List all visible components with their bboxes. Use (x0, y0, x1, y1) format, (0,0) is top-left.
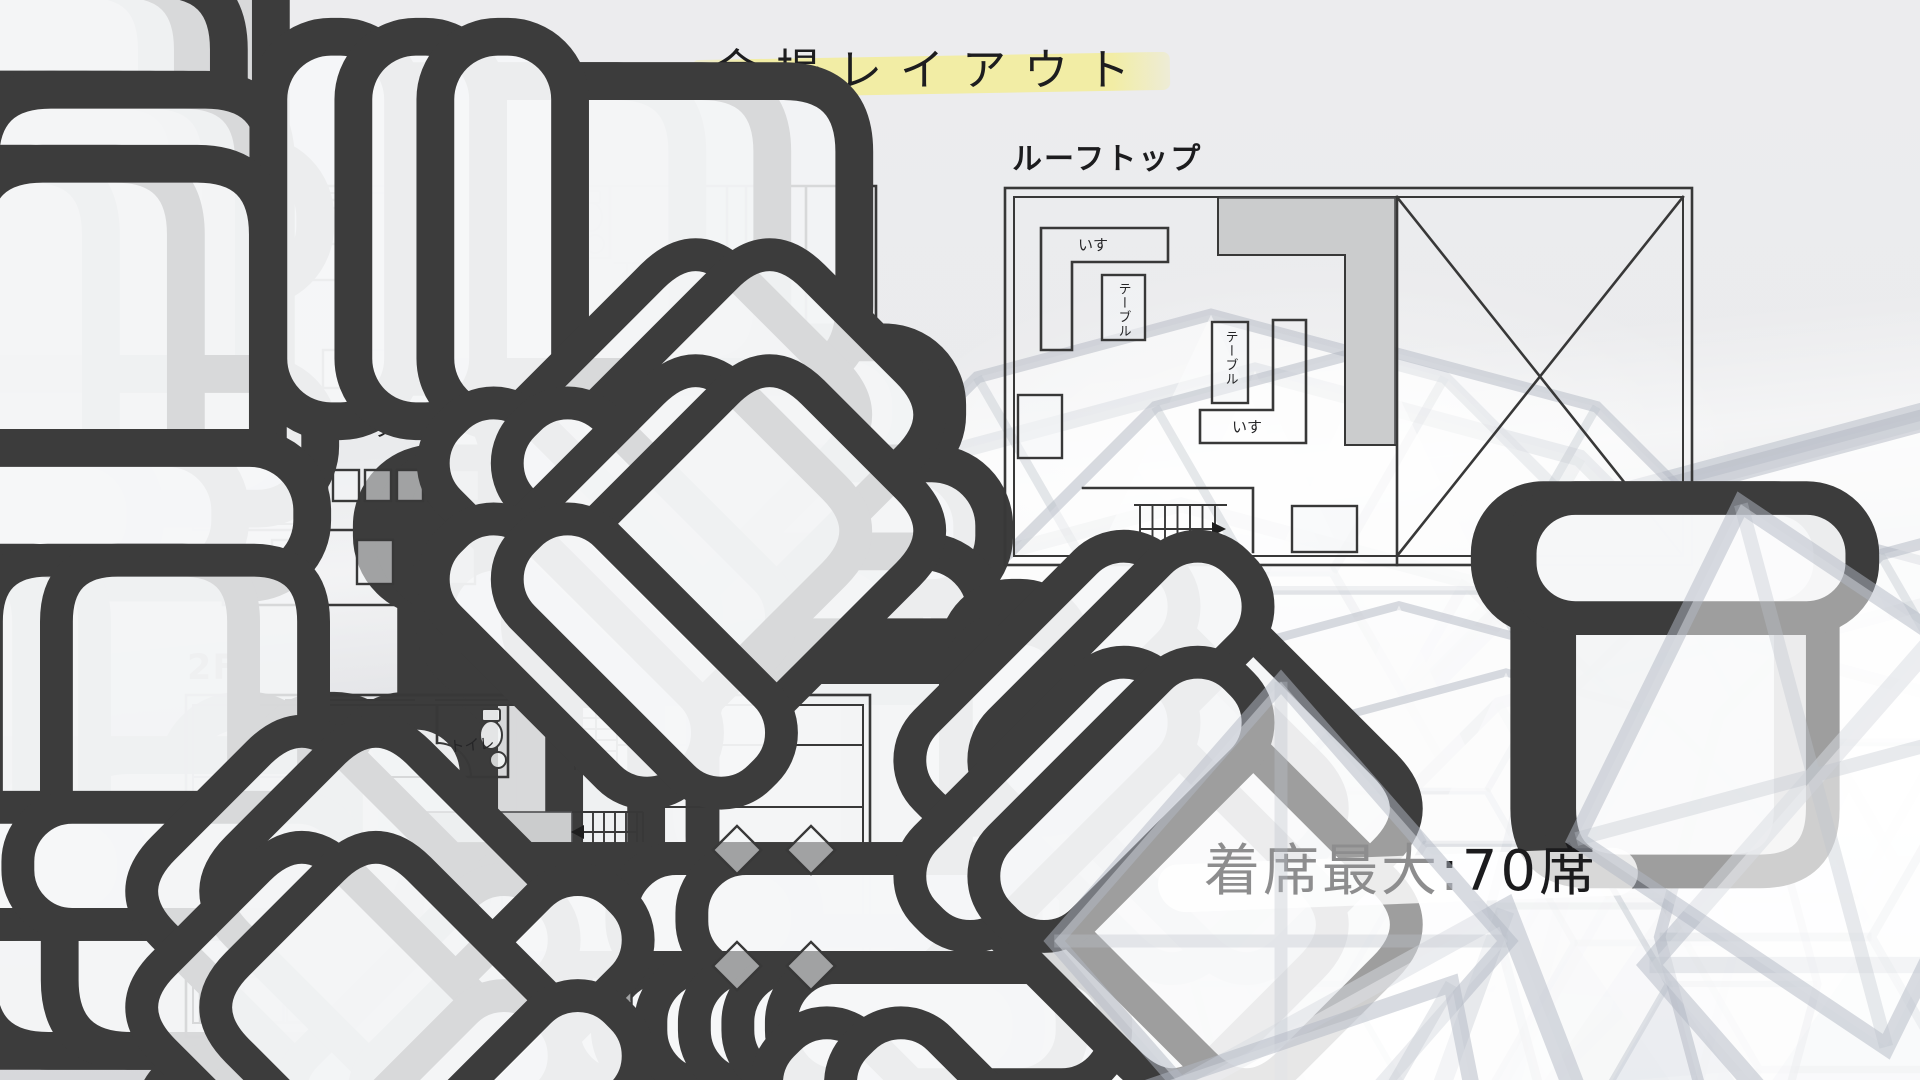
table (365, 470, 391, 501)
table (1018, 395, 1062, 458)
chair-icon (0, 164, 312, 583)
table (333, 470, 359, 501)
stairs-arrow-left (571, 825, 584, 839)
label-table-2: テーブル (1223, 330, 1238, 386)
venue-layout-page: 会場レイアウト 1F レジ トイレ キッチン (0, 0, 1920, 1080)
seating-note-wrap: 着席最大:70席 (1158, 826, 1644, 922)
label-toilet-2f: トイレ (449, 734, 495, 756)
table (357, 540, 393, 584)
chair-icon (1520, 498, 1863, 871)
label-chair-2: いす (1232, 418, 1262, 436)
label-table-1: テーブル (1116, 282, 1131, 338)
sink-icon (490, 752, 506, 768)
table (1292, 506, 1357, 552)
floor-plan-2f: トイレ (180, 655, 880, 1055)
floor-label-rooftop: ルーフトップ (1012, 134, 1202, 178)
floor-plan-rooftop: いす テーブル テーブル いす (1000, 180, 1730, 590)
seating-note: 着席最大:70席 (1158, 826, 1644, 907)
label-chair-1: いす (1078, 236, 1108, 254)
